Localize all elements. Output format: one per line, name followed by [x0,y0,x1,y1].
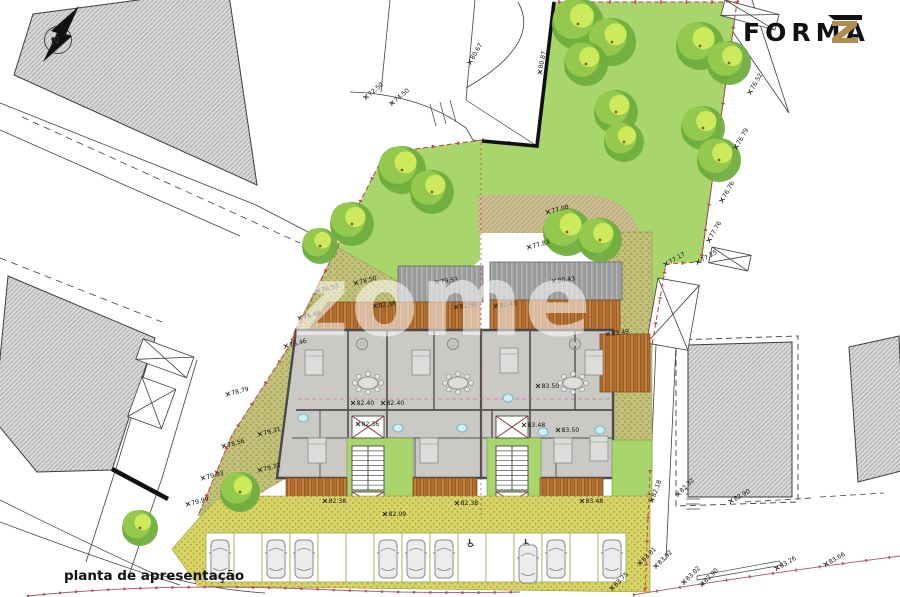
tree [410,170,454,214]
parking-stall: ♿ [458,533,486,582]
parking-stalls: ♿♿ [206,533,626,583]
parking-stall [290,533,318,582]
parking-stall [318,533,346,582]
parking-stall [570,533,598,582]
survey-cross-icon [538,70,543,75]
elevation-value: 72.50 [367,81,385,98]
elevation-value: 83.26 [779,555,798,570]
tree [697,138,741,182]
bath-fixture [393,424,403,432]
neighbor-building-east [688,342,792,497]
tree [122,510,158,546]
tree [564,42,608,86]
dining-set [558,372,589,395]
elevation-value: 80.67 [469,42,484,61]
elevator-shaft [496,416,528,438]
parking-stall [542,533,570,582]
car-icon [405,540,427,578]
parking-stall: ♿ [514,533,542,583]
bed [554,438,572,463]
elevation-marker: 80.67 [467,42,485,66]
elevation-value: 82.18 [651,479,664,498]
elevation-value: 83.48 [586,498,604,505]
parking-stall [346,533,374,582]
elevation-value: 76.52 [749,72,764,91]
car-icon [265,540,287,578]
site-plan-drawing: ♿♿ 76.5276.7976.7677.7677.2577.1777.0877… [0,0,900,597]
elevation-value: 82.36 [362,421,380,428]
parking-stall [402,533,430,582]
survey-cross-icon [186,502,191,507]
survey-cross-icon [226,392,231,397]
bed [590,436,608,461]
car-icon [293,540,315,578]
elevation-value: 82.38 [461,500,479,507]
elevation-value: 83.48 [528,422,546,429]
elevation-value: 82.09 [389,511,407,518]
car-icon [433,540,455,578]
parking-stall [374,533,402,582]
elevation-value: 83.92 [656,549,674,567]
elevation-marker: 76.76 [719,180,737,204]
bath-fixture [595,426,605,434]
terrace-east [600,334,650,392]
handicap-icon: ♿ [466,537,476,550]
elevation-value: 82.40 [387,400,405,407]
elevation-value: 83.50 [562,427,580,434]
elevation-value: 78.79 [231,386,250,397]
bed [308,438,326,463]
elevation-value: 82.38 [329,498,347,505]
garden-east [612,440,652,502]
staircase [352,446,384,490]
brand-logo: FORMA [743,15,870,47]
elevation-marker: 82.90 [699,567,720,588]
elevation-marker: 78.79 [225,386,249,399]
bath-fixture [298,414,308,422]
elevation-value: 76.79 [735,127,750,146]
neighbor-building-far-east [849,336,900,482]
car-icon [601,540,623,578]
elevation-marker: 72.50 [363,81,385,101]
watermark: zome [292,245,593,359]
parking-stall [486,533,514,582]
tree [707,41,751,85]
elevation-value: 74.50 [393,87,411,104]
elevation-marker: 76.52 [747,72,765,96]
bath-fixture [503,394,513,402]
neighbor-building-west [0,276,155,472]
parking-stall [430,533,458,582]
car-icon [545,540,567,578]
elevation-marker: 76.79 [733,127,751,151]
elevation-value: 82.40 [357,400,375,407]
parking-stall [262,533,290,582]
tree [604,122,644,162]
dining-set [353,372,384,395]
car-icon [377,540,399,578]
site-plan-canvas: ♿♿ 76.5276.7976.7677.7677.2577.1777.0877… [0,0,900,597]
staircase [496,446,528,490]
car-icon [517,545,539,583]
elevation-value: 83.50 [542,383,560,390]
page-title: planta de apresentação [64,568,244,584]
dining-set [443,372,474,395]
tree [220,472,260,512]
elevation-value: 77.76 [708,220,723,239]
elevation-marker: 77.76 [706,220,724,244]
bed [420,438,438,463]
bath-fixture [457,424,467,432]
elevation-marker: 74.50 [389,87,411,107]
elevation-value: 76.76 [721,180,736,199]
survey-cross-icon [201,476,206,481]
